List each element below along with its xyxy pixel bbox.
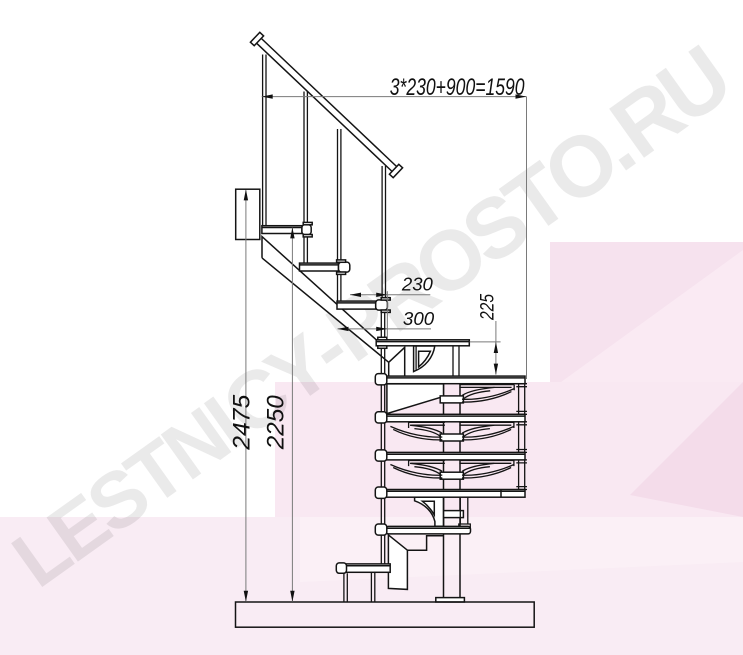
svg-text:300: 300	[403, 308, 435, 329]
svg-text:225: 225	[478, 294, 499, 321]
svg-text:3*230+900=1590: 3*230+900=1590	[390, 74, 525, 101]
svg-text:2250: 2250	[263, 395, 290, 451]
svg-text:230: 230	[401, 273, 434, 294]
svg-text:2475: 2475	[229, 394, 256, 451]
